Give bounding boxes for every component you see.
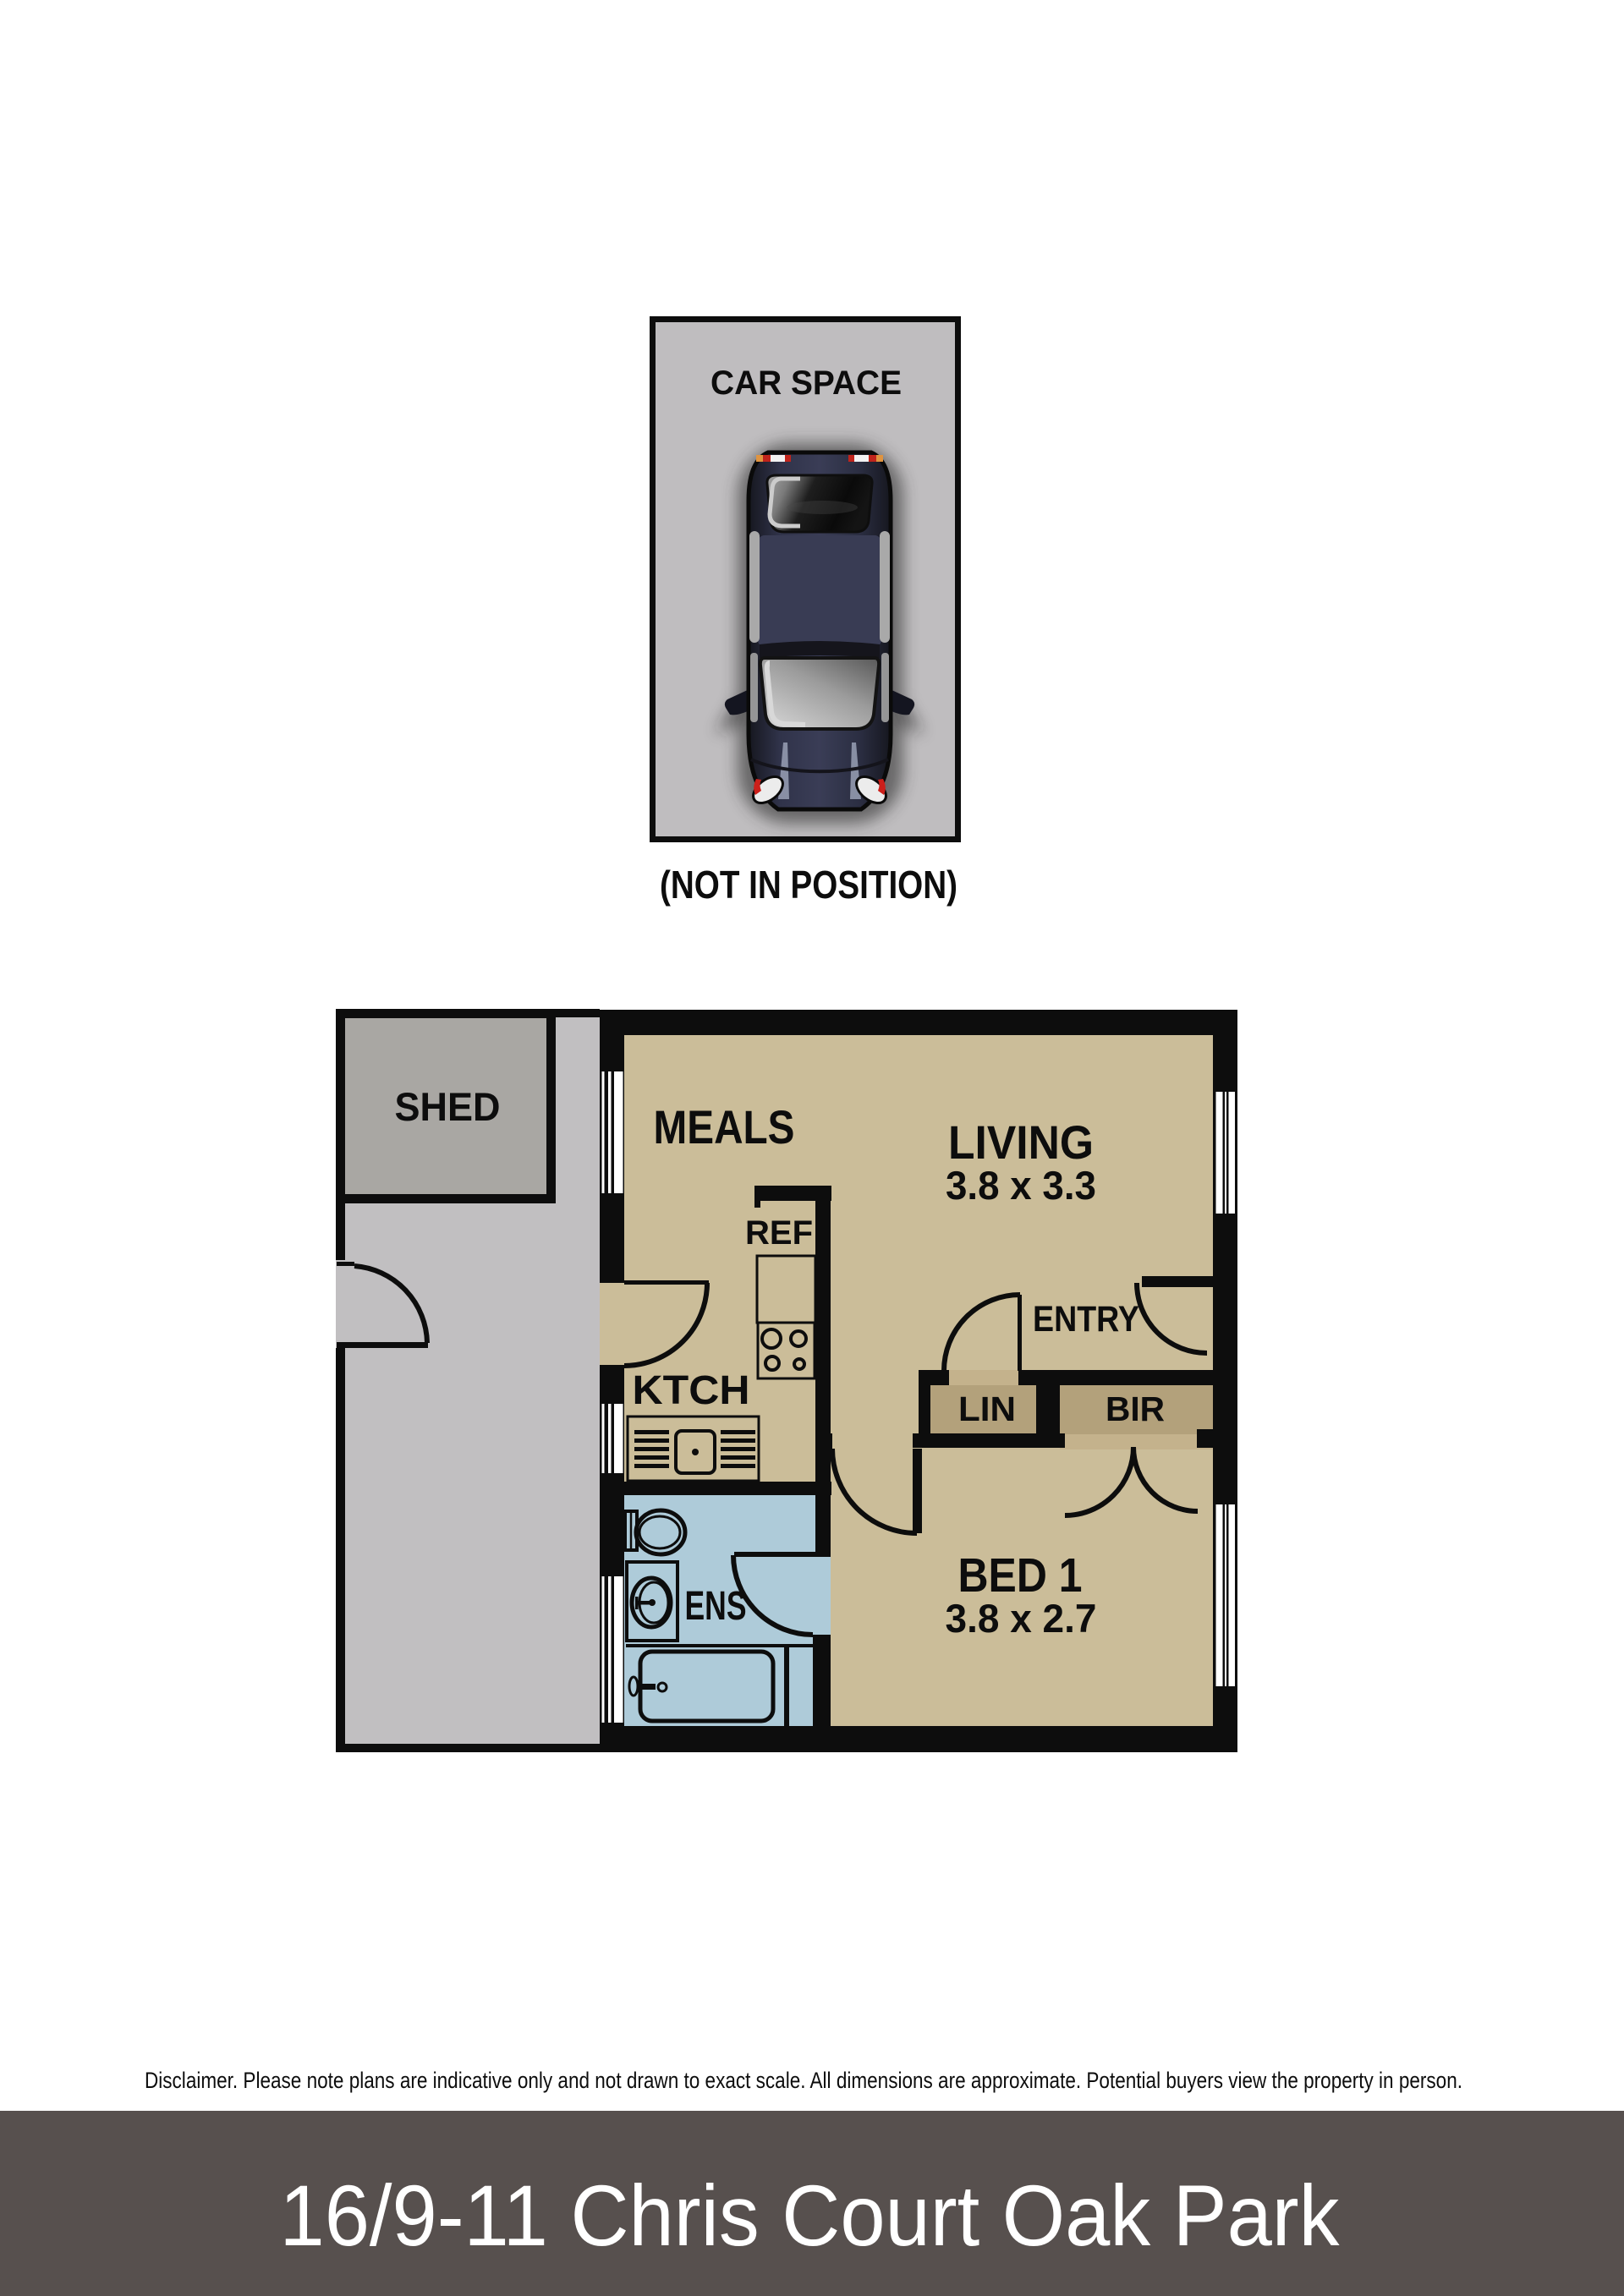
svg-text:LIN: LIN — [958, 1389, 1016, 1428]
svg-text:BED 1: BED 1 — [958, 1548, 1083, 1603]
svg-text:Disclaimer. Please note plans: Disclaimer. Please note plans are indica… — [145, 2068, 1462, 2093]
svg-text:LIVING: LIVING — [948, 1115, 1094, 1169]
svg-text:MEALS: MEALS — [654, 1100, 795, 1153]
svg-text:CAR SPACE: CAR SPACE — [710, 364, 902, 402]
svg-text:ENS: ENS — [685, 1584, 747, 1629]
svg-text:REF: REF — [745, 1214, 813, 1252]
svg-text:KTCH: KTCH — [633, 1368, 750, 1413]
svg-text:SHED: SHED — [395, 1084, 501, 1129]
svg-text:(NOT IN POSITION): (NOT IN POSITION) — [660, 863, 957, 907]
svg-text:ENTRY: ENTRY — [1033, 1299, 1139, 1340]
svg-text:BIR: BIR — [1106, 1389, 1165, 1428]
svg-text:3.8 x 3.3: 3.8 x 3.3 — [946, 1163, 1096, 1208]
svg-text:16/9-11 Chris Court Oak Park: 16/9-11 Chris Court Oak Park — [280, 2167, 1341, 2264]
svg-text:3.8 x 2.7: 3.8 x 2.7 — [946, 1596, 1097, 1641]
